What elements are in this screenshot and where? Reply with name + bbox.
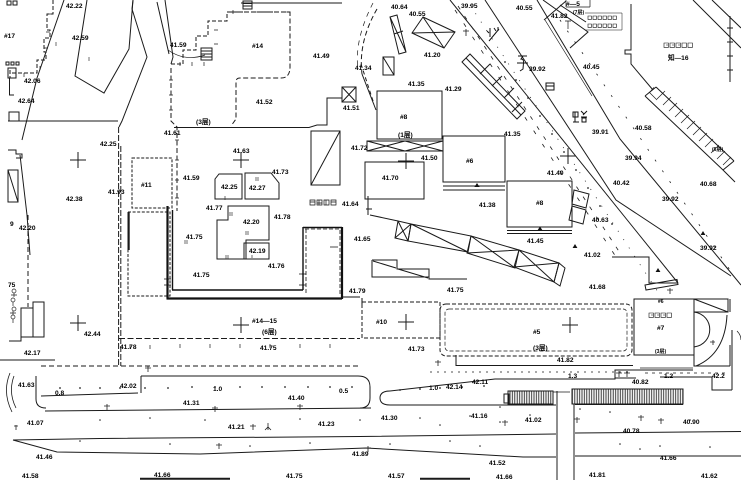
svg-text:41.52: 41.52 xyxy=(256,99,273,106)
svg-text:(6层): (6层) xyxy=(712,146,723,153)
svg-text:41.02: 41.02 xyxy=(584,252,601,259)
svg-text:41.77: 41.77 xyxy=(206,205,223,212)
svg-text:41.35: 41.35 xyxy=(504,131,521,138)
svg-text:42.25: 42.25 xyxy=(100,141,117,148)
svg-text:41.34: 41.34 xyxy=(355,65,372,72)
svg-text:42.19: 42.19 xyxy=(249,248,266,255)
svg-text:41.82: 41.82 xyxy=(551,13,568,20)
svg-text:41.50: 41.50 xyxy=(421,155,438,162)
svg-text:41.81: 41.81 xyxy=(589,472,606,479)
svg-text:40.63: 40.63 xyxy=(592,217,609,224)
svg-text:41.78: 41.78 xyxy=(274,214,291,221)
svg-text:42.2: 42.2 xyxy=(712,373,725,380)
svg-text:41.38: 41.38 xyxy=(479,202,496,209)
svg-text:40.45: 40.45 xyxy=(583,64,600,71)
svg-text:(1层): (1层) xyxy=(398,130,413,139)
svg-text:41.78: 41.78 xyxy=(120,344,137,351)
svg-text:41.63: 41.63 xyxy=(233,148,250,155)
svg-text:41.75: 41.75 xyxy=(447,287,464,294)
svg-text:40.58: 40.58 xyxy=(635,125,652,132)
svg-text:39.92: 39.92 xyxy=(529,66,546,73)
svg-text:42.27: 42.27 xyxy=(249,185,266,192)
svg-text:#10: #10 xyxy=(376,319,387,326)
svg-text:40.90: 40.90 xyxy=(683,419,700,426)
svg-text:39.91: 39.91 xyxy=(592,129,609,136)
svg-text:41.76: 41.76 xyxy=(268,263,285,270)
svg-text:40.78: 40.78 xyxy=(623,428,640,435)
svg-text:(6层): (6层) xyxy=(262,327,277,336)
svg-text:40.82: 40.82 xyxy=(632,379,649,386)
svg-text:42.44: 42.44 xyxy=(84,331,101,338)
svg-text:40.68: 40.68 xyxy=(700,181,717,188)
svg-text:#8: #8 xyxy=(400,114,408,121)
svg-text:41.40: 41.40 xyxy=(288,395,305,402)
svg-text:41.64: 41.64 xyxy=(342,201,359,208)
svg-text:#—5: #—5 xyxy=(566,1,580,8)
svg-text:#6: #6 xyxy=(466,158,474,165)
svg-text:41.62: 41.62 xyxy=(701,473,718,480)
svg-text:41.40: 41.40 xyxy=(547,170,564,177)
svg-text:41.61: 41.61 xyxy=(164,130,181,137)
svg-text:(3层): (3层) xyxy=(655,348,666,355)
svg-text:41.89: 41.89 xyxy=(352,451,369,458)
svg-text:42.14: 42.14 xyxy=(446,384,463,391)
svg-text:39.92: 39.92 xyxy=(700,245,717,252)
svg-text:#5: #5 xyxy=(533,329,541,336)
svg-text:40.55: 40.55 xyxy=(516,5,533,12)
svg-text:41.59: 41.59 xyxy=(170,42,187,49)
svg-text:42.59: 42.59 xyxy=(72,35,89,42)
svg-text:40.64: 40.64 xyxy=(391,4,408,11)
svg-text:41.93: 41.93 xyxy=(108,189,125,196)
svg-text:39.92: 39.92 xyxy=(662,196,679,203)
svg-text:40.55: 40.55 xyxy=(409,11,426,18)
svg-text:41.21: 41.21 xyxy=(228,424,245,431)
svg-text:41.02: 41.02 xyxy=(525,417,542,424)
svg-text:41.49: 41.49 xyxy=(313,53,330,60)
svg-text:41.68: 41.68 xyxy=(589,284,606,291)
svg-text:41.82: 41.82 xyxy=(557,357,574,364)
svg-text:41.07: 41.07 xyxy=(27,420,44,427)
svg-text:41.51: 41.51 xyxy=(343,105,360,112)
svg-text:41.79: 41.79 xyxy=(349,288,366,295)
svg-text:41.73: 41.73 xyxy=(408,346,425,353)
svg-text:#11: #11 xyxy=(141,182,152,189)
svg-text:41.70: 41.70 xyxy=(382,175,399,182)
svg-text:41.35: 41.35 xyxy=(408,81,425,88)
svg-text:(3层): (3层) xyxy=(196,117,211,126)
svg-text:0.5: 0.5 xyxy=(339,388,348,395)
svg-text:42.64: 42.64 xyxy=(18,98,35,105)
svg-text:(3层): (3层) xyxy=(533,343,548,352)
svg-text:0.8: 0.8 xyxy=(55,390,64,397)
svg-text:41.63: 41.63 xyxy=(18,382,35,389)
svg-text:42.11: 42.11 xyxy=(472,379,488,386)
svg-text:41.75: 41.75 xyxy=(286,473,303,480)
svg-text:41.23: 41.23 xyxy=(318,421,335,428)
svg-text:#14: #14 xyxy=(252,43,263,50)
svg-text:41.20: 41.20 xyxy=(424,52,441,59)
svg-text:41.75: 41.75 xyxy=(260,345,277,352)
svg-text:42.22: 42.22 xyxy=(66,3,83,10)
svg-text:(7层): (7层) xyxy=(573,9,584,16)
svg-text:41.45: 41.45 xyxy=(527,238,544,245)
svg-text:41.75: 41.75 xyxy=(193,272,210,279)
svg-text:1.0: 1.0 xyxy=(213,386,222,393)
svg-text:#14—15: #14—15 xyxy=(252,318,277,325)
svg-text:39.95: 39.95 xyxy=(461,3,478,10)
svg-text:41.65: 41.65 xyxy=(354,236,371,243)
svg-text:41.57: 41.57 xyxy=(388,473,405,480)
svg-text:41.75: 41.75 xyxy=(186,234,203,241)
svg-text:42.20: 42.20 xyxy=(243,219,260,226)
svg-text:#6: #6 xyxy=(658,299,664,305)
svg-text:40.42: 40.42 xyxy=(613,180,630,187)
svg-text:42.20: 42.20 xyxy=(19,225,36,232)
svg-text:41.58: 41.58 xyxy=(22,473,39,480)
svg-text:41.66: 41.66 xyxy=(660,455,677,462)
svg-text:39.94: 39.94 xyxy=(625,155,642,162)
svg-text:#17: #17 xyxy=(4,33,15,40)
svg-text:42.38: 42.38 xyxy=(66,196,83,203)
svg-text:1.0: 1.0 xyxy=(429,385,438,392)
svg-text:42.25: 42.25 xyxy=(221,184,238,191)
svg-text:42.06: 42.06 xyxy=(24,78,41,85)
svg-text:42.02: 42.02 xyxy=(120,383,137,390)
svg-text:41.73: 41.73 xyxy=(272,169,289,176)
svg-text:42.17: 42.17 xyxy=(24,350,41,357)
svg-text:41.66: 41.66 xyxy=(154,472,171,479)
svg-text:知—16: 知—16 xyxy=(667,53,689,62)
svg-text:41.72: 41.72 xyxy=(351,145,368,152)
svg-text:1.2: 1.2 xyxy=(664,373,673,380)
svg-text:41.66: 41.66 xyxy=(496,474,513,480)
svg-text:41.31: 41.31 xyxy=(183,400,200,407)
svg-text:1.3: 1.3 xyxy=(568,373,577,380)
svg-text:41.30: 41.30 xyxy=(381,415,398,422)
svg-text:41.29: 41.29 xyxy=(445,86,462,93)
svg-text:41.16: 41.16 xyxy=(471,413,488,420)
svg-text:9: 9 xyxy=(10,221,14,228)
svg-text:41.46: 41.46 xyxy=(36,454,53,461)
svg-text:#8: #8 xyxy=(536,200,544,207)
svg-text:75: 75 xyxy=(8,282,16,289)
svg-text:41.59: 41.59 xyxy=(183,175,200,182)
svg-text:#7: #7 xyxy=(657,325,665,332)
svg-text:41.52: 41.52 xyxy=(489,460,506,467)
